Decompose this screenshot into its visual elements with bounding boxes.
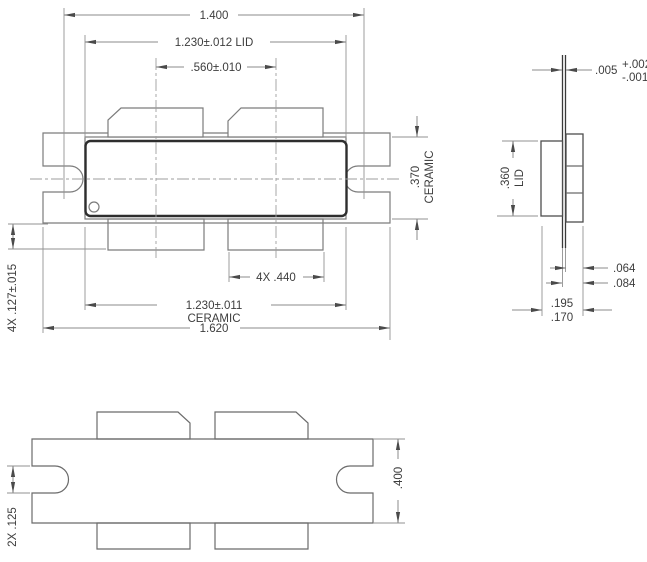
lead-bottom-right (215, 523, 308, 549)
dim-lead-pitch: .560±.010 (190, 62, 241, 74)
dim-lid-span: .360 (500, 167, 512, 189)
dim-hole-span: 1.400 (200, 10, 229, 22)
dim-lead-thickness-tol-minus: -.001 (622, 72, 647, 84)
dim-lead-length: 4X .127±.015 (7, 264, 19, 332)
lead-top-left (97, 412, 190, 439)
dim-flange-length: 1.620 (200, 323, 229, 335)
lead-top-right (215, 412, 308, 439)
flange-outline (32, 439, 373, 523)
flange-profile (566, 134, 583, 222)
lead-top-left (108, 108, 203, 137)
engineering-drawing-page: 1.400 1.230±.012 LID .560±.010 .370 CERA… (0, 0, 647, 562)
lead-bottom-right (228, 219, 323, 250)
dim-lead-width: 4X .440 (256, 272, 296, 284)
side-view: .005 +.002 -.001 .360 LID .064 .084 .195… (497, 55, 647, 324)
dim-flange-thickness: .064 (613, 263, 636, 275)
lead-top-right (228, 108, 323, 137)
dim-seat-height: .084 (613, 278, 636, 290)
dim-height-max: .195 (551, 298, 573, 310)
lid-profile (541, 141, 563, 216)
dim-lead-thickness-tol-plus: +.002 (622, 59, 647, 71)
dim-ceramic-depth: .370 (410, 166, 422, 188)
dim-slot-width: 2X .125 (7, 507, 19, 547)
dim-ceramic-depth-label: CERAMIC (424, 150, 436, 203)
lead-bottom-left (97, 523, 190, 549)
top-view: 1.400 1.230±.012 LID .560±.010 .370 CERA… (7, 8, 436, 340)
rf-package-outline-drawing: 1.400 1.230±.012 LID .560±.010 .370 CERA… (0, 0, 647, 562)
dim-flange-width: .400 (393, 467, 405, 489)
dim-lid-span-label: LID (514, 169, 526, 187)
bottom-view: 2X .125 .400 (7, 412, 405, 549)
dim-height-min: .170 (551, 312, 573, 324)
dim-ceramic-width: 1.230±.011 (186, 300, 243, 312)
lid-outline (86, 141, 347, 216)
dim-lid-width: 1.230±.012 LID (175, 37, 254, 49)
dim-lead-thickness: .005 (595, 65, 617, 77)
